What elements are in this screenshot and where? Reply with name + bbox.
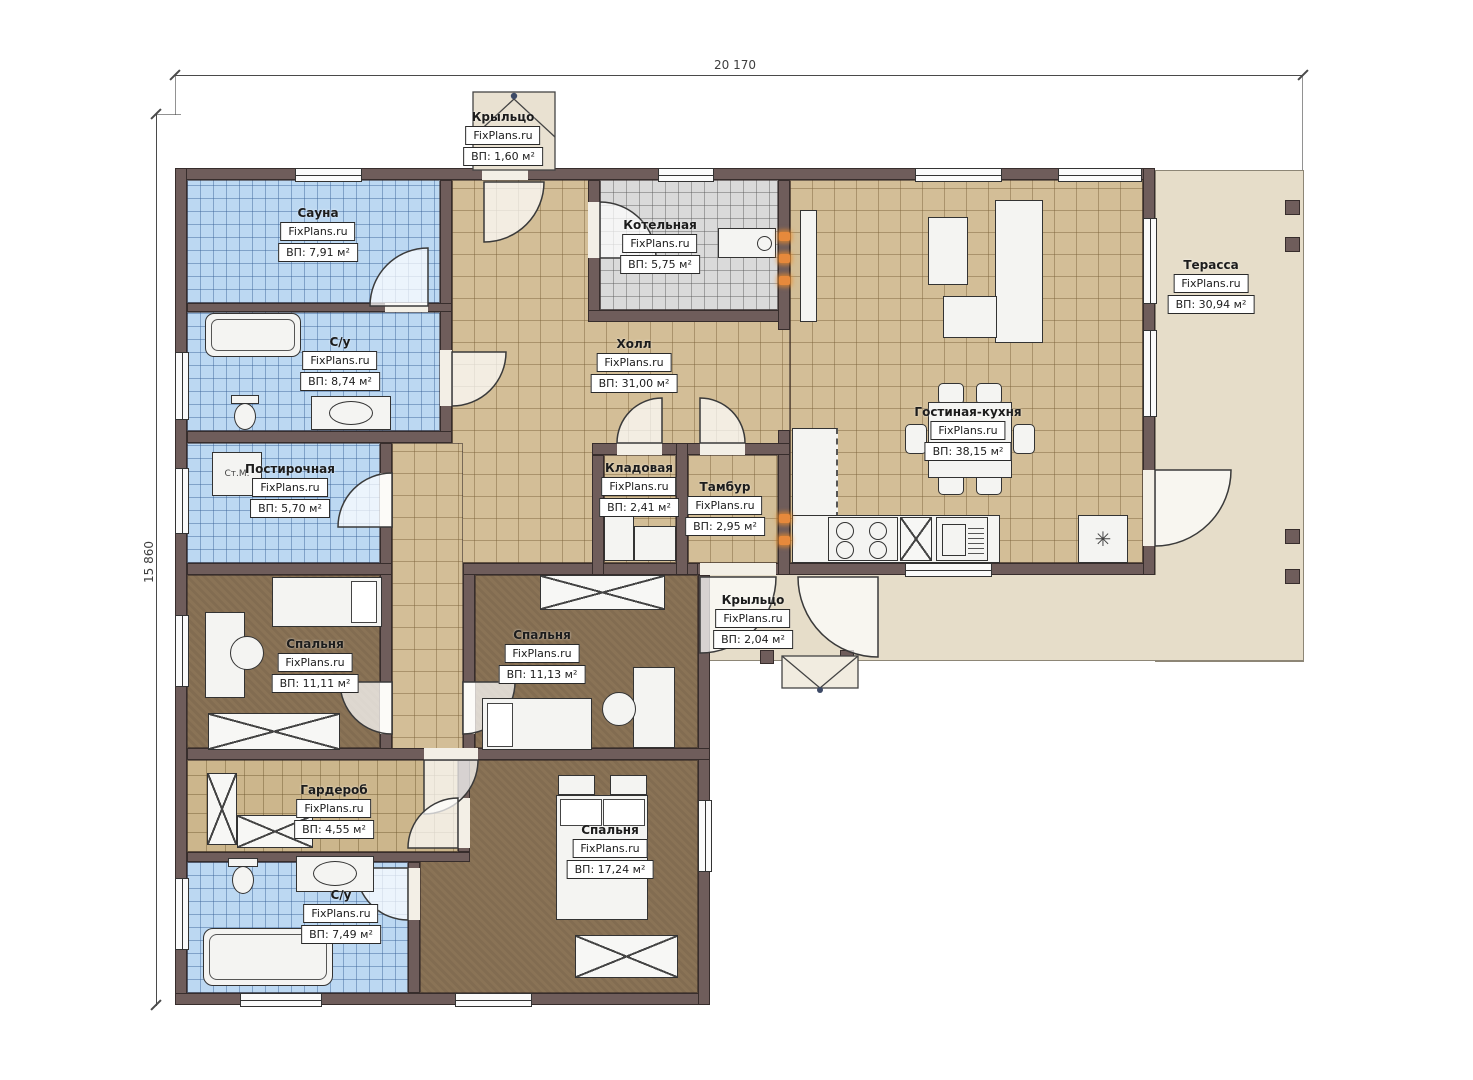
brand-watermark: FixPlans.ru [715, 609, 790, 628]
room-area: ВП: 5,70 м² [250, 499, 330, 518]
door-arc [408, 798, 458, 848]
room-label-bedroom-3: Спальня FixPlans.ru ВП: 17,24 м² [567, 823, 654, 879]
brand-watermark: FixPlans.ru [252, 478, 327, 497]
room-label-bedroom-2: Спальня FixPlans.ru ВП: 11,13 м² [499, 628, 586, 684]
radiator [779, 514, 790, 523]
room-name: Спальня [286, 637, 344, 651]
sofa-chaise [943, 296, 997, 338]
room-label-terrace: Терасса FixPlans.ru ВП: 30,94 м² [1168, 258, 1255, 314]
brand-watermark: FixPlans.ru [465, 126, 540, 145]
wardrobe-cabinet [575, 935, 678, 978]
brand-watermark: FixPlans.ru [622, 234, 697, 253]
kitchen-sink-cabinet [900, 517, 932, 561]
room-name: Гостиная-кухня [914, 405, 1021, 419]
bed-single [272, 577, 382, 627]
wardrobe-cabinet [540, 575, 665, 610]
room-name: Терасса [1183, 258, 1238, 272]
room-label-storage: Кладовая FixPlans.ru ВП: 2,41 м² [599, 461, 679, 517]
room-area: ВП: 11,11 м² [272, 674, 359, 693]
brand-watermark: FixPlans.ru [303, 904, 378, 923]
room-area: ВП: 8,74 м² [300, 372, 380, 391]
brand-watermark: FixPlans.ru [601, 477, 676, 496]
room-area: ВП: 2,41 м² [599, 498, 679, 517]
desk [633, 667, 675, 748]
room-label-boiler: Котельная FixPlans.ru ВП: 5,75 м² [620, 218, 700, 274]
door-arc [338, 473, 392, 527]
radiator [779, 536, 790, 545]
room-label-laundry: Постирочная FixPlans.ru ВП: 5,70 м² [245, 462, 335, 518]
room-label-living-kitchen: Гостиная-кухня FixPlans.ru ВП: 38,15 м² [914, 405, 1021, 461]
sofa [995, 200, 1043, 343]
room-area: ВП: 30,94 м² [1168, 295, 1255, 314]
room-name: Котельная [623, 218, 697, 232]
door-arc [617, 398, 662, 443]
radiator [779, 254, 790, 263]
room-area: ВП: 38,15 м² [925, 442, 1012, 461]
brand-watermark: FixPlans.ru [280, 222, 355, 241]
room-name: Сауна [297, 206, 338, 220]
room-name: Крыльцо [722, 593, 785, 607]
room-label-bathroom-1: С/у FixPlans.ru ВП: 8,74 м² [300, 335, 380, 391]
fridge: ✳ [1078, 515, 1128, 563]
bed-single [482, 698, 592, 750]
brand-watermark: FixPlans.ru [596, 353, 671, 372]
room-name: Постирочная [245, 462, 335, 476]
boiler-unit [718, 228, 776, 258]
room-name: Гардероб [300, 783, 367, 797]
door-arc [370, 248, 428, 306]
room-name: Крыльцо [472, 110, 535, 124]
door-arc [1155, 470, 1231, 546]
radiator [779, 276, 790, 285]
room-label-wardrobe: Гардероб FixPlans.ru ВП: 4,55 м² [294, 783, 374, 839]
room-area: ВП: 5,75 м² [620, 255, 700, 274]
room-area: ВП: 7,49 м² [301, 925, 381, 944]
brand-watermark: FixPlans.ru [302, 351, 377, 370]
brand-watermark: FixPlans.ru [504, 644, 579, 663]
sink [329, 401, 373, 425]
toilet-bowl [234, 403, 256, 430]
chair [230, 636, 264, 670]
room-label-bathroom-2: С/у FixPlans.ru ВП: 7,49 м² [301, 888, 381, 944]
door-arc [700, 398, 745, 443]
tv-unit [800, 210, 817, 322]
chair [602, 692, 636, 726]
door-arc [484, 182, 544, 242]
room-name: Холл [616, 337, 651, 351]
room-area: ВП: 7,91 м² [278, 243, 358, 262]
room-area: ВП: 4,55 м² [294, 820, 374, 839]
nightstand [610, 775, 647, 795]
sink [313, 861, 357, 886]
floor-plan: Ст.М. ✳ [0, 0, 1473, 1080]
stove [828, 517, 898, 561]
brand-watermark: FixPlans.ru [687, 496, 762, 515]
fridge-symbol: ✳ [1095, 527, 1112, 551]
room-name: Тамбур [700, 480, 751, 494]
room-name: Спальня [513, 628, 571, 642]
room-label-vestibule: Тамбур FixPlans.ru ВП: 2,95 м² [685, 480, 765, 536]
doors-layer [0, 0, 1473, 1080]
door-arc [798, 577, 878, 657]
room-area: ВП: 2,04 м² [713, 630, 793, 649]
room-label-porch-bottom: Крыльцо FixPlans.ru ВП: 2,04 м² [713, 593, 793, 649]
toilet-bowl [232, 866, 254, 894]
room-name: Кладовая [605, 461, 673, 475]
room-label-sauna: Сауна FixPlans.ru ВП: 7,91 м² [278, 206, 358, 262]
room-label-porch-top: Крыльцо FixPlans.ru ВП: 1,60 м² [463, 110, 543, 166]
brand-watermark: FixPlans.ru [572, 839, 647, 858]
radiator [779, 232, 790, 241]
room-name: С/у [329, 335, 350, 349]
dishwasher [936, 517, 988, 561]
room-area: ВП: 1,60 м² [463, 147, 543, 166]
nightstand [558, 775, 595, 795]
room-label-hall: Холл FixPlans.ru ВП: 31,00 м² [591, 337, 678, 393]
room-name: Спальня [581, 823, 639, 837]
brand-watermark: FixPlans.ru [296, 799, 371, 818]
room-label-bedroom-1: Спальня FixPlans.ru ВП: 11,11 м² [272, 637, 359, 693]
wardrobe-cabinet [207, 773, 237, 845]
room-name: С/у [330, 888, 351, 902]
entrance-steps [782, 656, 858, 693]
room-area: ВП: 11,13 м² [499, 665, 586, 684]
brand-watermark: FixPlans.ru [930, 421, 1005, 440]
room-area: ВП: 2,95 м² [685, 517, 765, 536]
room-area: ВП: 17,24 м² [567, 860, 654, 879]
door-arc [452, 352, 506, 406]
kitchen-corner-cabinet [792, 428, 838, 518]
bathtub [205, 313, 301, 357]
wardrobe-cabinet [208, 713, 340, 750]
brand-watermark: FixPlans.ru [277, 653, 352, 672]
storage-shelf [634, 526, 676, 561]
room-area: ВП: 31,00 м² [591, 374, 678, 393]
brand-watermark: FixPlans.ru [1173, 274, 1248, 293]
coffee-table [928, 217, 968, 285]
